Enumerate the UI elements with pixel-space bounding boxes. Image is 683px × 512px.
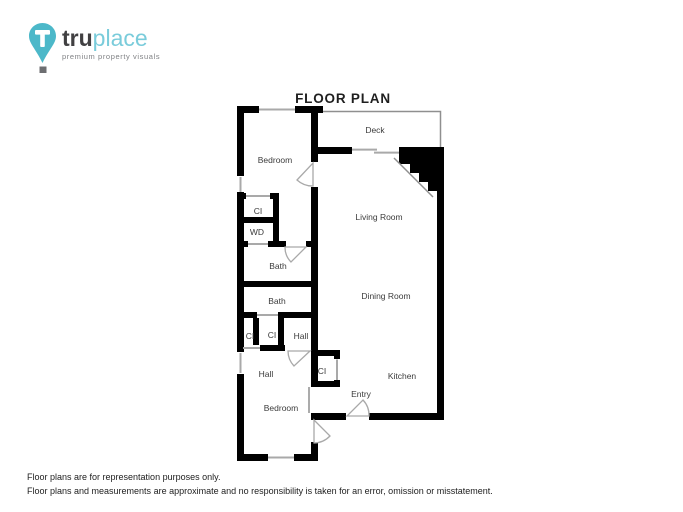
door-bedroom-top xyxy=(297,163,313,186)
room-label-entry: Entry xyxy=(351,389,372,399)
room-label-hall-upper: Hall xyxy=(294,331,309,341)
room-label-dining-room: Dining Room xyxy=(361,291,410,301)
room-label-washer-dryer: WD xyxy=(250,227,264,237)
room-label-hall-lower: Hall xyxy=(259,369,274,379)
door-entry xyxy=(347,400,369,416)
corner-fireplace xyxy=(394,154,437,197)
room-label-bedroom-bottom: Bedroom xyxy=(264,403,299,413)
room-labels: Deck Bedroom CI WD Living Room Bath Bath… xyxy=(246,125,417,413)
room-label-deck: Deck xyxy=(365,125,385,135)
disclaimer: Floor plans are for representation purpo… xyxy=(27,471,493,498)
door-bath-upper xyxy=(285,247,306,262)
door-hall-lower xyxy=(288,351,310,366)
disclaimer-line-1: Floor plans are for representation purpo… xyxy=(27,471,493,485)
room-label-closet-top: CI xyxy=(254,206,263,216)
floor-plan-drawing: FLOOR PLAN xyxy=(0,0,683,512)
room-label-living-room: Living Room xyxy=(355,212,402,222)
room-label-bath-upper: Bath xyxy=(269,261,287,271)
door-bedroom-bottom xyxy=(314,420,330,443)
plan-title: FLOOR PLAN xyxy=(295,91,391,106)
room-label-closet-mid: CI xyxy=(268,330,277,340)
sliding-door xyxy=(352,150,399,153)
disclaimer-line-2: Floor plans and measurements are approxi… xyxy=(27,485,493,499)
room-label-closet-left: CI xyxy=(246,331,255,341)
room-label-bedroom-top: Bedroom xyxy=(258,155,293,165)
room-label-bath-lower: Bath xyxy=(268,296,286,306)
floor-plan-page: truplace premium property visuals FLOOR … xyxy=(0,0,683,512)
swing-doors xyxy=(285,163,369,443)
room-label-kitchen: Kitchen xyxy=(388,371,417,381)
room-label-closet-entry: CI xyxy=(318,366,327,376)
